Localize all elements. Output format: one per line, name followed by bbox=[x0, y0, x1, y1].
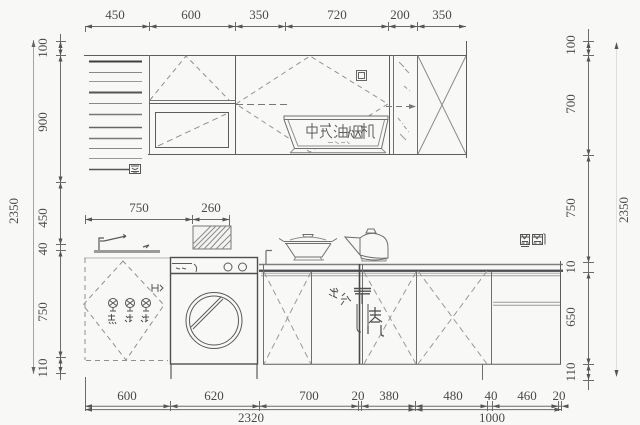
svg-text:750: 750 bbox=[563, 198, 578, 218]
svg-text:600: 600 bbox=[181, 7, 201, 22]
svg-text:2350: 2350 bbox=[616, 197, 631, 223]
svg-text:2350: 2350 bbox=[6, 198, 21, 224]
svg-text:380: 380 bbox=[379, 388, 399, 403]
svg-text:350: 350 bbox=[249, 7, 269, 22]
svg-text:350: 350 bbox=[432, 7, 452, 22]
svg-text:1000: 1000 bbox=[479, 410, 505, 425]
svg-text:450: 450 bbox=[35, 208, 50, 228]
svg-text:600: 600 bbox=[117, 388, 137, 403]
svg-text:40: 40 bbox=[485, 388, 498, 403]
svg-text:750: 750 bbox=[129, 200, 149, 215]
svg-text:260: 260 bbox=[201, 200, 221, 215]
svg-text:650: 650 bbox=[563, 307, 578, 327]
svg-text:100: 100 bbox=[563, 35, 578, 55]
svg-text:700: 700 bbox=[299, 388, 319, 403]
svg-text:20: 20 bbox=[553, 388, 566, 403]
svg-text:450: 450 bbox=[105, 7, 125, 22]
svg-text:110: 110 bbox=[35, 358, 50, 377]
svg-text:2320: 2320 bbox=[238, 410, 264, 425]
svg-text:620: 620 bbox=[204, 388, 224, 403]
svg-text:480: 480 bbox=[443, 388, 463, 403]
svg-text:750: 750 bbox=[35, 302, 50, 322]
svg-text:460: 460 bbox=[517, 388, 537, 403]
svg-text:20: 20 bbox=[352, 388, 365, 403]
svg-text:110: 110 bbox=[563, 362, 578, 381]
svg-text:40: 40 bbox=[35, 243, 50, 256]
svg-text:100: 100 bbox=[35, 38, 50, 58]
svg-text:720: 720 bbox=[327, 7, 347, 22]
svg-text:10: 10 bbox=[563, 261, 578, 274]
svg-text:700: 700 bbox=[563, 94, 578, 114]
svg-text:200: 200 bbox=[390, 7, 410, 22]
svg-text:900: 900 bbox=[35, 112, 50, 132]
